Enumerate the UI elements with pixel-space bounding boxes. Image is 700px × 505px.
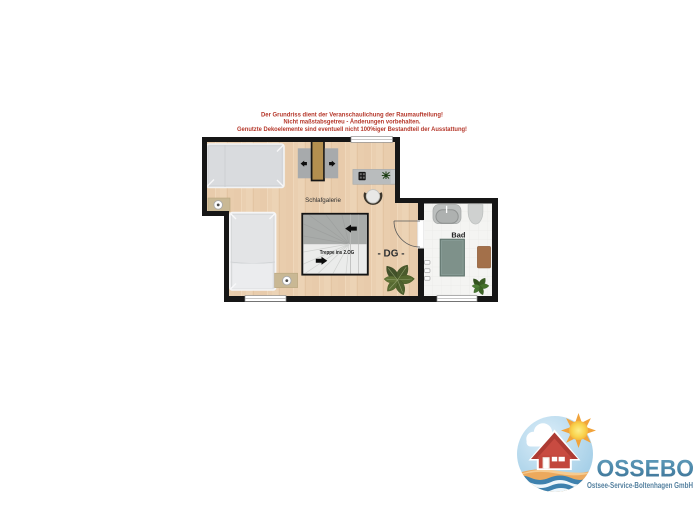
svg-text:- DG -: - DG - [378,248,405,259]
svg-text:Bad: Bad [451,231,465,240]
svg-text:Der Grundriss dient der Verans: Der Grundriss dient der Veranschaulichun… [261,111,443,118]
svg-text:Treppe ins 2.OG: Treppe ins 2.OG [320,250,355,256]
svg-text:Genutzte Dekoelemente sind eve: Genutzte Dekoelemente sind eventuell nic… [237,126,467,133]
svg-text:Nicht maßstabsgetreu - Änderun: Nicht maßstabsgetreu - Änderungen vorbeh… [284,118,421,126]
svg-text:Schlafgalerie: Schlafgalerie [305,197,341,204]
svg-text:Ostsee-Service-Boltenhagen Gmb: Ostsee-Service-Boltenhagen GmbH [587,481,693,490]
svg-text:OSSEBO: OSSEBO [597,455,695,482]
